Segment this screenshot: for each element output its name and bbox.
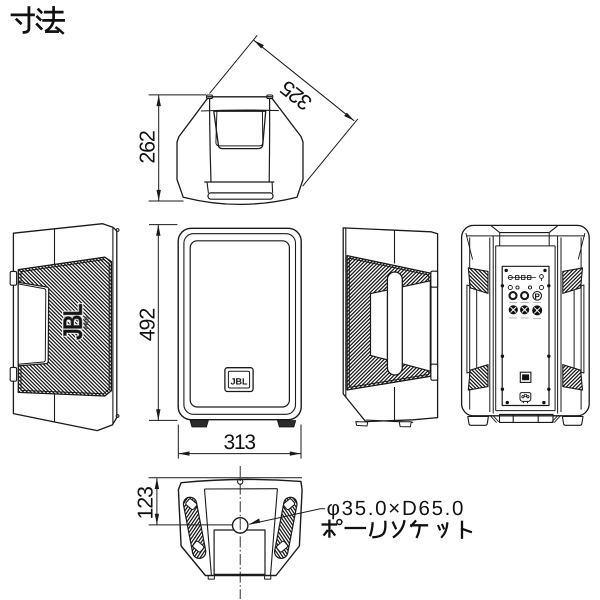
- svg-text:492: 492: [135, 309, 159, 342]
- svg-text:PRO: PRO: [85, 316, 91, 329]
- svg-text:JBL: JBL: [522, 375, 530, 380]
- svg-text:φ35.0×D65.0: φ35.0×D65.0: [327, 497, 466, 520]
- svg-text:JBL: JBL: [58, 304, 88, 340]
- svg-text:123: 123: [133, 486, 157, 520]
- svg-text:P: P: [535, 292, 541, 301]
- svg-text:313: 313: [223, 431, 255, 454]
- svg-text:JBL: JBL: [230, 376, 248, 386]
- svg-text:262: 262: [135, 131, 159, 164]
